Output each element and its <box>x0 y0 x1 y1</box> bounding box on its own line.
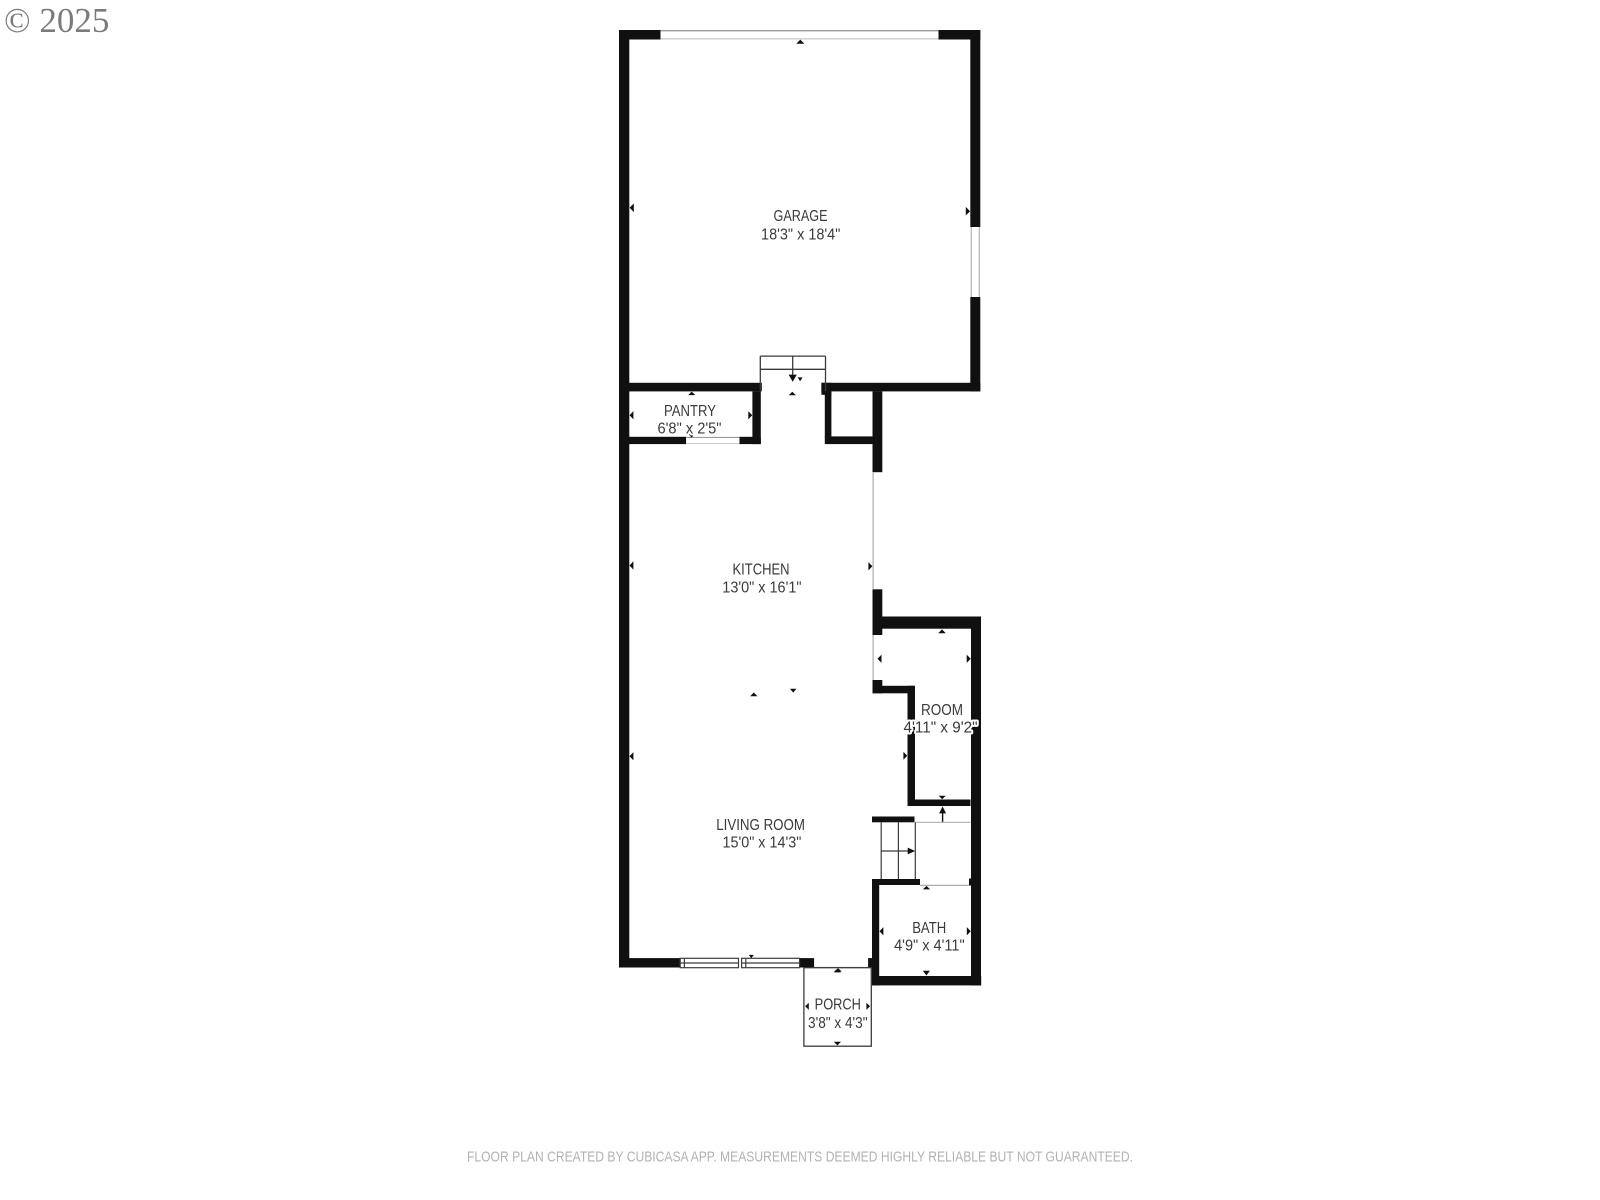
svg-text:LIVING ROOM: LIVING ROOM <box>716 817 805 834</box>
svg-text:FLOOR PLAN CREATED BY CUBICASA: FLOOR PLAN CREATED BY CUBICASA APP. MEAS… <box>467 1150 1133 1166</box>
svg-text:4'9" x 4'11": 4'9" x 4'11" <box>894 938 965 955</box>
svg-text:3'8" x 4'3": 3'8" x 4'3" <box>808 1015 868 1032</box>
svg-text:18'3" x 18'4": 18'3" x 18'4" <box>761 227 840 244</box>
svg-text:PORCH: PORCH <box>815 996 861 1013</box>
svg-text:© 2025: © 2025 <box>4 1 109 40</box>
svg-text:13'0" x 16'1": 13'0" x 16'1" <box>722 579 801 596</box>
svg-text:GARAGE: GARAGE <box>774 208 828 225</box>
svg-text:4'11" x 9'2": 4'11" x 9'2" <box>904 720 978 737</box>
svg-text:6'8" x 2'5": 6'8" x 2'5" <box>658 420 722 437</box>
svg-text:15'0" x 14'3": 15'0" x 14'3" <box>723 834 802 851</box>
svg-text:KITCHEN: KITCHEN <box>733 562 790 579</box>
svg-text:ROOM: ROOM <box>921 702 963 719</box>
svg-text:BATH: BATH <box>912 920 946 937</box>
svg-text:PANTRY: PANTRY <box>664 403 716 420</box>
